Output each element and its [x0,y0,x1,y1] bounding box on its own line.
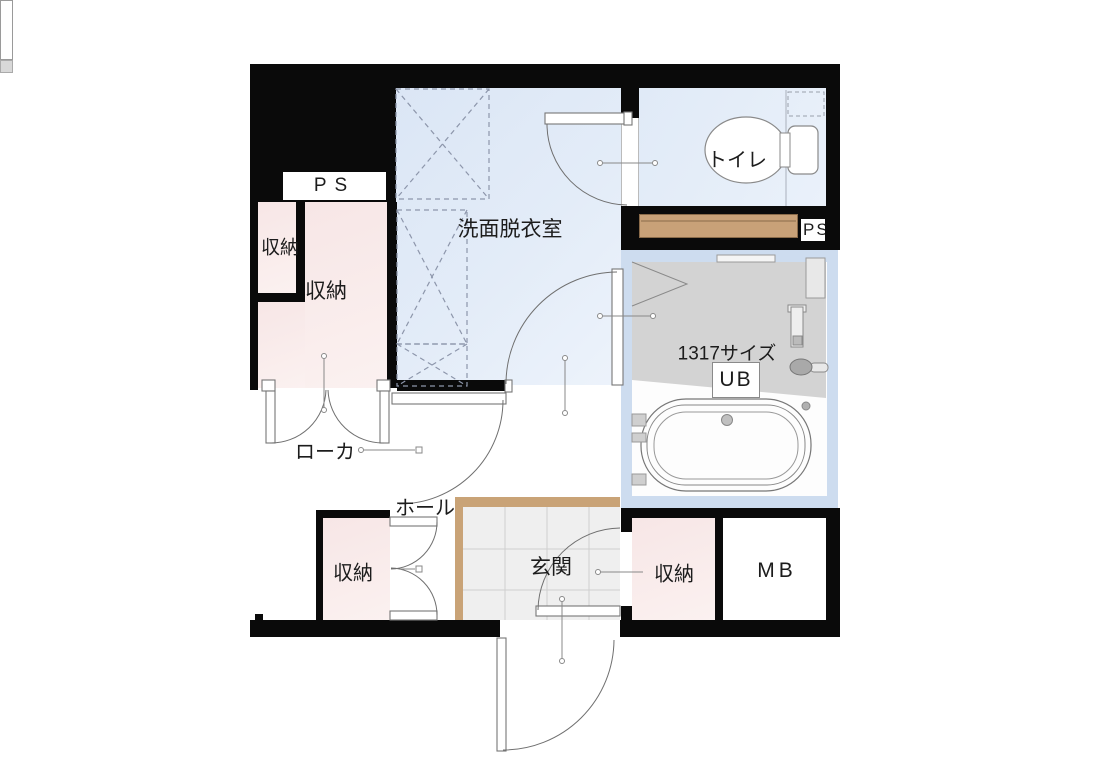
shower-slide-bar [788,305,806,347]
linework-layer [0,0,1100,778]
bath-door-leaf [612,269,623,385]
storage-bl-leaf-bottom [390,611,437,620]
storage-bl-arc-bottom [391,568,437,615]
room-label-storage-bottom-left: 収納 [333,557,373,586]
room-label-meter-box: MB [757,559,797,583]
room-label-storage-top-small: 収納 [261,233,299,260]
room-label-corridor: ローカ [295,436,355,465]
unit-bath-label: UB [719,368,752,392]
corridor-storage-jamb-right [377,380,390,391]
corridor-storage-leaf-left [266,391,275,443]
corridor-storage-leaf-right [380,391,389,443]
door-leaves [262,112,632,751]
bath-mirror [717,255,775,262]
room-label-hall: ホール [395,492,455,521]
pipe-space-right-label: PS [801,220,825,240]
pipe-space-right-box: PS [801,219,825,241]
bathtub-drain [722,415,733,426]
hall-door-leaf [392,393,506,404]
toilet-door-arc [547,124,627,205]
room-label-storage-top-large: 収納 [305,275,347,305]
room-label-toilet: トイレ [707,144,767,173]
entrance-door-leaf [497,638,506,751]
toilet-door-jamb [624,112,632,125]
bath-counter [806,258,825,298]
storage-bl-arc-top [391,522,437,569]
room-label-storage-bottom-right: 収納 [654,558,694,587]
bath-door-arc [506,272,617,384]
bathtub [632,399,811,491]
storage-br-leaf [536,606,620,616]
bath-dot-fitting [802,402,810,410]
unit-bath-size-label: 1317サイズ [678,339,777,366]
floor-plan: PS PS UB 洗面脱衣室 トイレ 1317サイズ 収納 収納 ローカ ホール… [0,0,1100,778]
hall-door-arc [399,400,503,504]
toilet-door-leaf [545,113,629,124]
pipe-space-top-left-box: PS [283,172,386,200]
toilet-corner-dashed-box [788,92,824,116]
room-label-washroom: 洗面脱衣室 [458,213,563,243]
pipe-space-top-left-label: PS [314,175,355,197]
unit-bath-ub-box: UB [712,362,760,398]
entrance-door-arc [503,640,614,750]
room-label-entrance: 玄関 [530,551,572,581]
corridor-storage-jamb-left [262,380,275,391]
